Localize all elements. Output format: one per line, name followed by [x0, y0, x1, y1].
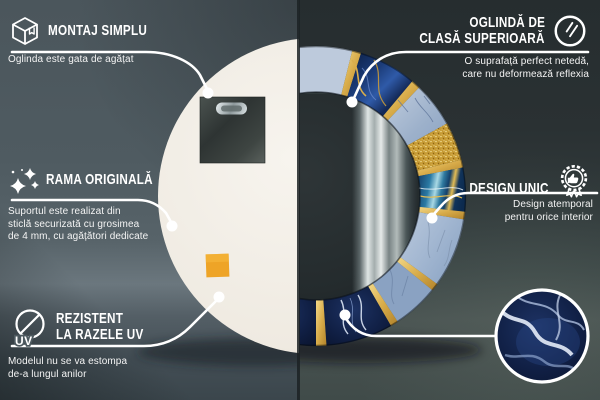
callout-uv: UV REZISTENT LA RAZELE UV Modelul nu se … [8, 306, 218, 381]
callout-title-line: OGLINDĂ DE [469, 15, 545, 31]
callout-desc-line: Oglinda este gata de agățat [8, 54, 218, 67]
callout-title-line: CLASĂ SUPERIOARĂ [420, 31, 545, 47]
callout-dot-oglinda [347, 97, 358, 108]
uv-protection-icon: UV [8, 306, 50, 348]
callout-desc-line: care nu deformează reflexia [349, 69, 589, 82]
callout-desc-line: de 4 mm, cu agățători dedicate [8, 231, 208, 244]
callout-dot-detail [340, 310, 351, 321]
mirror-shine-icon [551, 12, 589, 50]
sparkles-icon [8, 164, 40, 196]
split-divider [297, 0, 300, 400]
callout-design: DESIGN UNIC Design atemporal pentru oric… [373, 163, 593, 224]
sticker-highlight [206, 254, 229, 263]
callout-desc-line: de-a lungul anilor [8, 369, 218, 382]
callout-desc-line: Design atemporal [373, 199, 593, 212]
callout-rama: RAMA ORIGINALĂ Suportul este realizat di… [8, 164, 208, 244]
callout-oglinda: OGLINDĂ DE CLASĂ SUPERIOARĂ O suprafață … [349, 12, 589, 81]
hanging-slot-inner [221, 106, 242, 112]
callout-title: MONTAJ SIMPLU [48, 23, 147, 39]
callout-desc-line: Modelul nu se va estompa [8, 356, 218, 369]
callout-montaj: MONTAJ SIMPLU Oglinda este gata de agăța… [8, 14, 218, 67]
callout-desc-line: O suprafață perfect netedă, [349, 56, 589, 69]
callout-dot-uv [214, 292, 225, 303]
callout-desc-line: sticlă securizată cu grosimea [8, 219, 208, 232]
award-badge-icon [555, 163, 593, 201]
material-detail-circle [496, 290, 588, 382]
callout-desc-line: pentru orice interior [373, 212, 593, 225]
mirror-product-infographic: MONTAJ SIMPLU Oglinda este gata de agăța… [0, 0, 600, 400]
thumbs-up-glyph [568, 174, 579, 184]
callout-title-line: REZISTENT [56, 311, 144, 327]
uv-icon-label: UV [15, 334, 33, 348]
callout-dot-montaj [203, 88, 214, 99]
callout-title-line: LA RAZELE UV [56, 327, 144, 343]
callout-desc-line: Suportul este realizat din [8, 206, 208, 219]
package-icon [8, 14, 42, 48]
callout-title: DESIGN UNIC [470, 181, 549, 197]
callout-title: RAMA ORIGINALĂ [46, 172, 153, 188]
